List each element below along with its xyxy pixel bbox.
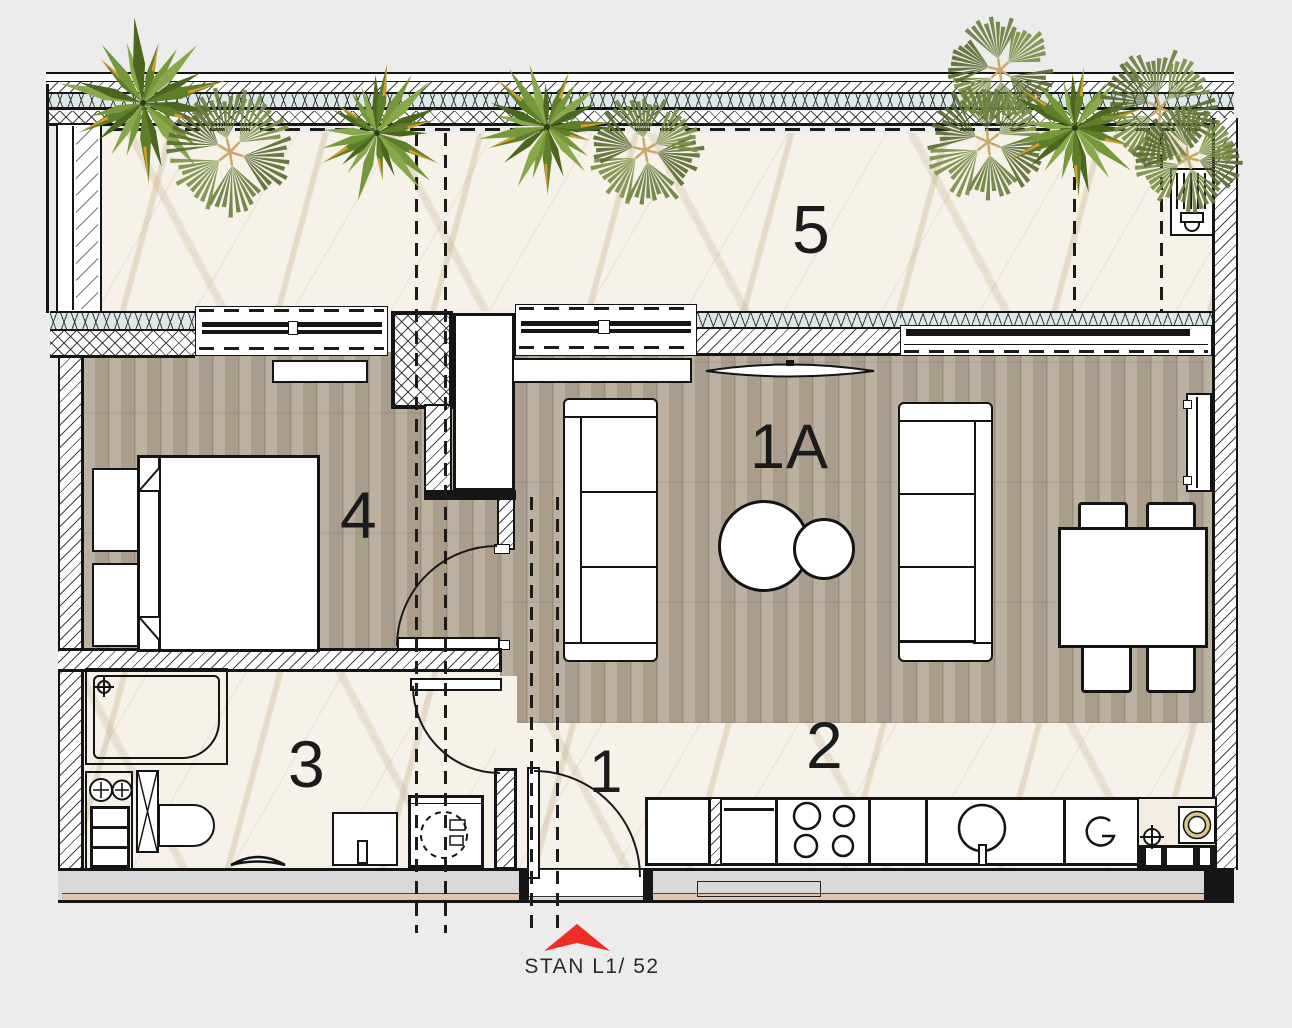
sofa-right-cushion-3: [898, 566, 976, 642]
facade-line-2: [46, 107, 1234, 110]
bed-headboard-line: [158, 458, 161, 649]
tv-unit-line: [1196, 397, 1198, 488]
parapet-edge: [46, 72, 1234, 82]
room-label-hall: 1: [589, 742, 623, 802]
ac-pipe: [1184, 223, 1200, 232]
entrance-arrow: [544, 924, 610, 951]
projection-line-4: [556, 497, 559, 933]
projection-line-1: [415, 133, 418, 933]
projection-line-2: [444, 133, 447, 933]
bottom-wall-detail: [697, 881, 821, 897]
room-label-living: 1A: [750, 416, 829, 479]
sliding-door-mullion: [598, 320, 610, 334]
ac-bracket: [1180, 212, 1204, 223]
wall-bedroom-living-upper: [424, 404, 452, 494]
bottom-wall-baseline: [58, 900, 1212, 903]
sofa-right: [898, 402, 993, 662]
bedroom-door-leaf: [397, 637, 500, 650]
sliding-door-dash-bottom: [519, 346, 693, 349]
terrace-floor: [100, 133, 1212, 311]
vanity-cabinet-line-2: [93, 846, 127, 849]
kitchen-divider-4: [1063, 799, 1066, 864]
sofa-right-cushion-1: [898, 420, 976, 496]
band-mid-insulation: [697, 311, 900, 329]
living-glazed-wall-line: [904, 344, 1208, 345]
kitchen-divider-hatch: [708, 799, 722, 864]
bathroom-door-leaf: [410, 678, 502, 691]
kitchen-divider-1: [775, 799, 778, 864]
right-wall: [1212, 118, 1238, 870]
nightstand-top: [92, 468, 142, 552]
sideboard: [512, 358, 692, 383]
bedroom-window-mullion: [288, 321, 298, 335]
room-label-bedroom: 4: [340, 482, 378, 548]
kitchen-right-base-slot-2: [1167, 848, 1193, 865]
terrace-boundary-dashed: [110, 128, 1205, 131]
sofa-right-cushion-2: [898, 493, 976, 569]
projection-line-3: [530, 497, 533, 933]
ac-unit: [1170, 168, 1214, 236]
band-mid-hatch: [697, 329, 900, 356]
sofa-left-cushion-1: [580, 416, 658, 494]
wall-bedroom-living-lower: [497, 498, 515, 550]
left-outer-line: [46, 84, 49, 313]
facade-crosshatch-band: [46, 111, 1234, 123]
sofa-left-cushion-2: [580, 491, 658, 569]
dining-table: [1058, 527, 1208, 648]
band-left-insulation: [50, 311, 195, 331]
bedroom-window-dash-bottom: [199, 347, 384, 350]
wall-bathroom-hall-stub: [494, 768, 517, 870]
projection-line-6: [1160, 133, 1163, 311]
plan-title: STAN L1/ 52: [502, 955, 682, 979]
room-label-bathroom: 3: [288, 731, 326, 797]
vanity-cabinet-line-1: [93, 826, 127, 829]
kitchen-divider-3: [925, 799, 928, 864]
living-glazed-wall-dash: [904, 350, 1208, 353]
entrance-door-leaf: [527, 767, 540, 879]
kitchen-right-base-slot-1: [1146, 848, 1161, 865]
sofa-right-armrest-bottom: [898, 641, 993, 662]
sofa-left-armrest-bottom: [563, 641, 658, 662]
floor-plan: 5 4 1A 3 2 1 STAN L1/ 52: [0, 0, 1292, 1028]
bedroom-window-dash-top: [199, 309, 384, 312]
bedroom-door-jamb-top: [494, 544, 510, 554]
entrance-sill: [524, 869, 646, 897]
bed: [137, 455, 320, 652]
bathtub: [93, 675, 220, 759]
band-right-insulation: [900, 311, 1212, 325]
kitchen-right-base-slot-3: [1200, 848, 1210, 865]
wardrobe-niche: [453, 313, 515, 491]
washbasin-pedestal: [357, 840, 368, 864]
projection-line-5: [1073, 133, 1076, 311]
kitchen-divider-2: [868, 799, 871, 864]
living-glazed-wall-bar: [906, 329, 1190, 336]
bedroom-window-bench: [272, 360, 368, 383]
toilet-cistern: [136, 770, 159, 853]
facade-hatch-band: [46, 82, 1234, 92]
nightstand-bottom: [92, 563, 142, 647]
tv-unit-speaker-2: [1183, 476, 1192, 485]
facade-line-3: [46, 123, 1234, 126]
facade-insulation-band: [46, 94, 1234, 107]
room-label-terrace: 5: [792, 196, 831, 264]
terrace-left-wall-hatch: [76, 127, 98, 309]
sofa-right-backrest: [973, 420, 993, 644]
sliding-door-dash-top: [519, 307, 693, 310]
terrace-left-wall-line: [72, 126, 74, 310]
coffee-table-small: [793, 518, 855, 580]
bottom-right-corner: [1204, 868, 1234, 903]
sofa-left-cushion-3: [580, 566, 658, 644]
left-wall: [58, 311, 84, 871]
kitchen-shelf-line: [724, 808, 774, 811]
band-left-crosshatch: [50, 331, 195, 358]
entrance-jamb-right: [643, 868, 653, 901]
sofa-left: [563, 398, 658, 662]
boiler-housing: [1178, 806, 1216, 844]
toilet-bowl: [158, 804, 215, 847]
ac-louvers: [1176, 173, 1208, 209]
room-label-kitchen: 2: [806, 712, 844, 778]
vanity-cabinet: [90, 806, 130, 868]
tv-unit-speaker-1: [1183, 400, 1192, 409]
